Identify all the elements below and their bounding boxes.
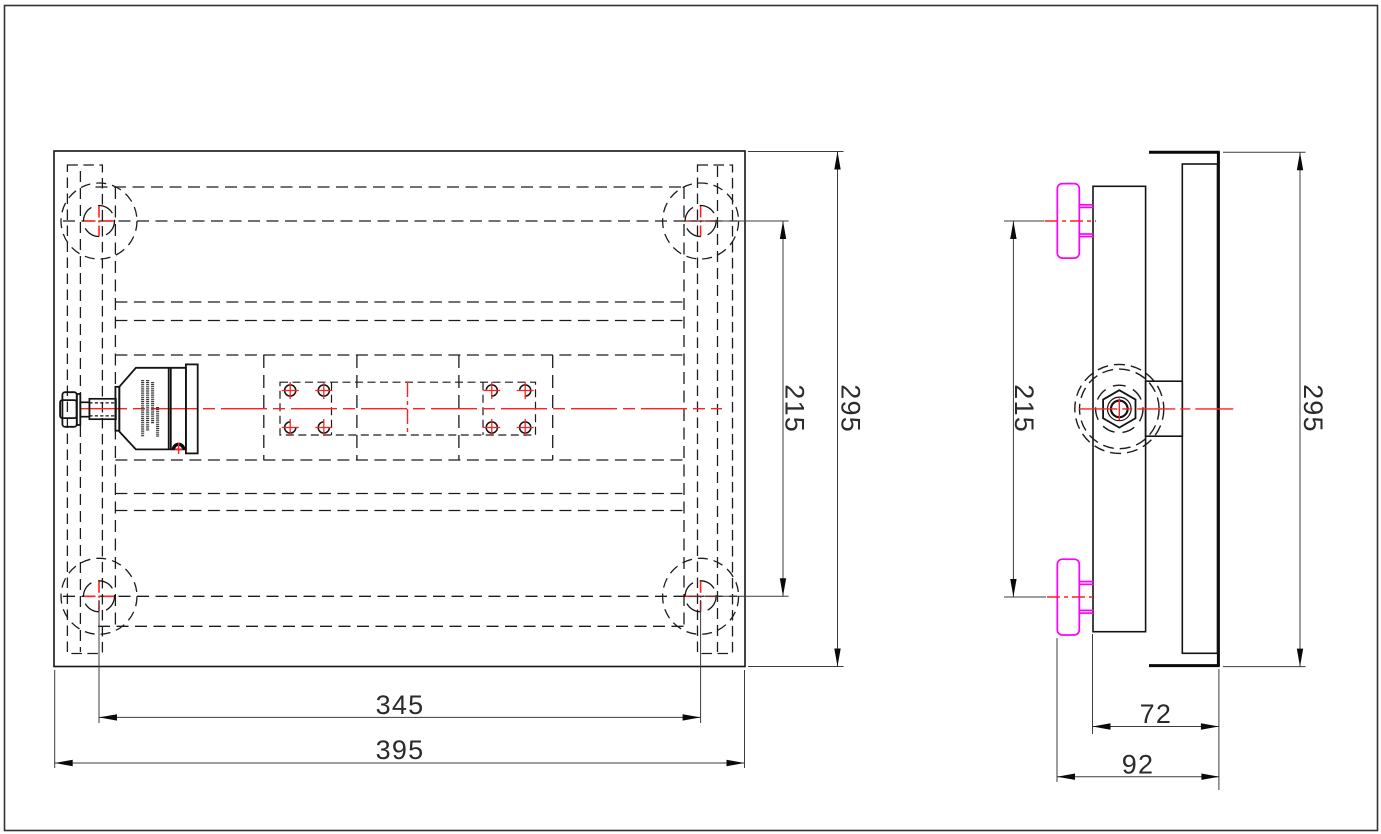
svg-text:395: 395 bbox=[376, 735, 425, 765]
svg-text:215: 215 bbox=[779, 384, 809, 433]
svg-text:295: 295 bbox=[1298, 384, 1328, 433]
svg-text:72: 72 bbox=[1140, 699, 1172, 729]
svg-text:345: 345 bbox=[376, 690, 425, 720]
svg-text:215: 215 bbox=[1009, 384, 1039, 433]
svg-text:92: 92 bbox=[1122, 750, 1154, 780]
svg-text:295: 295 bbox=[835, 384, 865, 433]
